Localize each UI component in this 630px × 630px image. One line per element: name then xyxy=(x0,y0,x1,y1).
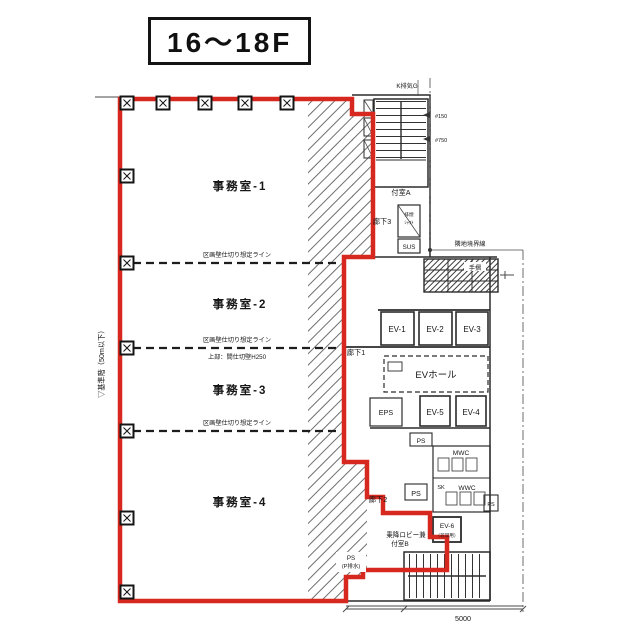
ps-drain-label-1: PS xyxy=(347,555,355,562)
partition-note-3: 区画壁仕切り想定ライン xyxy=(203,419,271,427)
ev2-label: EV-2 xyxy=(426,325,444,334)
ev3-label: EV-3 xyxy=(463,325,481,334)
dimension-5000: 5000 xyxy=(455,614,471,623)
base-floor-note: ▽基準階（50m以下） xyxy=(97,327,106,398)
ev-hall-label: EVホール xyxy=(415,370,457,381)
smoke-shaft-label-1: 排煙 xyxy=(404,211,414,218)
partition-note-sub: 上部：間仕切壁H250 xyxy=(208,353,267,361)
corridor-3-label: 廊下3 xyxy=(373,217,391,226)
office-1-label: 事務室-1 xyxy=(213,179,268,193)
office-4-label: 事務室-4 xyxy=(213,495,268,509)
handrail-label: 手摺 xyxy=(469,264,481,272)
wwc-label: WWC xyxy=(458,485,475,492)
office-3-label: 事務室-3 xyxy=(213,383,268,397)
lease-area-outline xyxy=(120,99,447,601)
floor-plan-drawing: 事務室-1 事務室-2 事務室-3 事務室-4 区画壁仕切り想定ライン 区画壁仕… xyxy=(0,0,630,630)
ps-b-label: PS xyxy=(411,489,421,498)
lobby-label-2: 付室B xyxy=(391,539,409,548)
exhaust-note: K排気G xyxy=(396,82,418,90)
eps-label: EPS xyxy=(379,408,394,417)
partition-note-2: 区画壁仕切り想定ライン xyxy=(203,336,271,344)
lobby-label-1: 乗降ロビー兼 xyxy=(386,530,426,539)
office-2-label: 事務室-2 xyxy=(213,297,268,311)
ev1-label: EV-1 xyxy=(388,325,406,334)
ev6-sub-label: （非常用） xyxy=(436,532,459,539)
stair-a-label: 付室A xyxy=(391,188,410,197)
ev5-label: EV-5 xyxy=(426,408,444,417)
sus-label: SUS xyxy=(403,244,416,251)
level-mark-150: #150 xyxy=(435,114,447,120)
ps-a-label: PS xyxy=(417,438,426,445)
level-mark-750: #750 xyxy=(435,138,447,144)
equipment-block xyxy=(424,259,514,292)
corridor-1-label: 廊下1 xyxy=(347,348,365,357)
sk-label: SK xyxy=(437,485,445,491)
mwc-label: MWC xyxy=(453,450,470,457)
corridor-2-label: 廊下2 xyxy=(369,495,387,504)
floor-plan-page: 16～18F xyxy=(0,0,630,630)
ev6-label: EV-6 xyxy=(440,523,455,530)
partition-note-1: 区画壁仕切り想定ライン xyxy=(203,251,271,259)
site-boundary-label: 隣地境界線 xyxy=(455,240,486,248)
ps-c-label: PS xyxy=(487,502,495,508)
ps-drain-label-2: (P排水) xyxy=(342,562,361,570)
ev4-label: EV-4 xyxy=(462,408,480,417)
